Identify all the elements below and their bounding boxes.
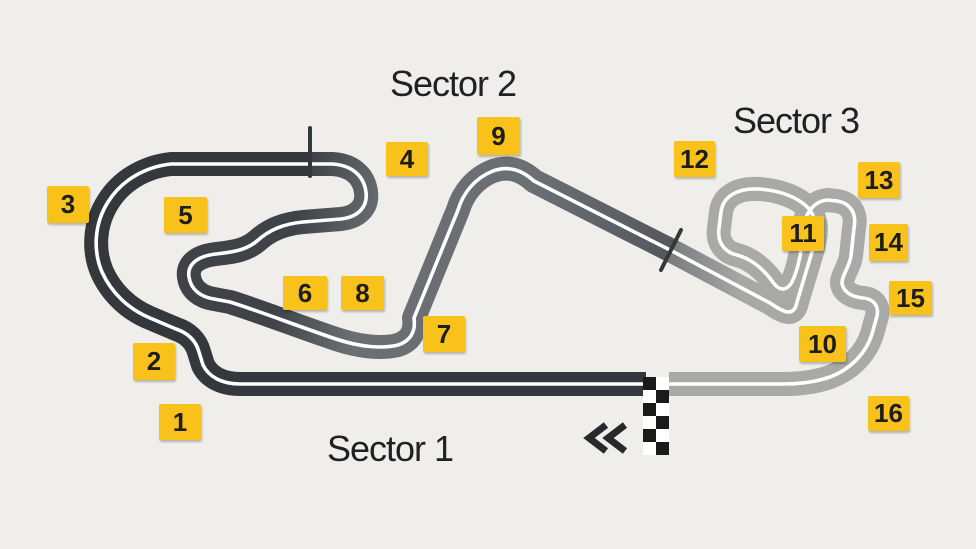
turn-badge-10: 10 [799, 326, 846, 362]
turn-badge-6: 6 [283, 276, 327, 310]
turn-badge-12: 12 [674, 141, 715, 177]
finish-flag-cell [643, 403, 656, 416]
turn-badge-15: 15 [889, 281, 932, 315]
turn-badge-14: 14 [869, 224, 908, 261]
finish-flag-cell [643, 416, 656, 429]
sector-1-label: Sector 1 [327, 428, 453, 470]
finish-flag-cell [643, 390, 656, 403]
finish-flag-cell [656, 390, 669, 403]
turn-badge-8: 8 [341, 276, 384, 310]
sector-2-label: Sector 2 [390, 63, 516, 105]
turn-badge-5: 5 [164, 197, 207, 233]
finish-flag-cell [656, 429, 669, 442]
sector-3-label: Sector 3 [733, 100, 859, 142]
turn-badge-1: 1 [159, 404, 201, 440]
finish-flag-cell [656, 403, 669, 416]
finish-flag-cell [643, 377, 656, 390]
turn-badge-4: 4 [386, 142, 428, 176]
turn-badge-11: 11 [782, 216, 824, 251]
turn-badge-3: 3 [47, 186, 89, 223]
finish-line-flag [643, 377, 669, 455]
finish-flag-cell [643, 442, 656, 455]
circuit-map: Sector 1 Sector 2 Sector 3 1234567891011… [0, 0, 976, 549]
turn-badge-9: 9 [477, 117, 520, 155]
turn-badge-13: 13 [858, 162, 900, 198]
finish-flag-cell [656, 416, 669, 429]
finish-flag-cell [643, 429, 656, 442]
turn-badge-7: 7 [423, 316, 465, 352]
turn-badge-2: 2 [133, 343, 175, 380]
turn-badge-16: 16 [868, 396, 909, 431]
finish-flag-cell [656, 442, 669, 455]
finish-flag-cell [656, 377, 669, 390]
